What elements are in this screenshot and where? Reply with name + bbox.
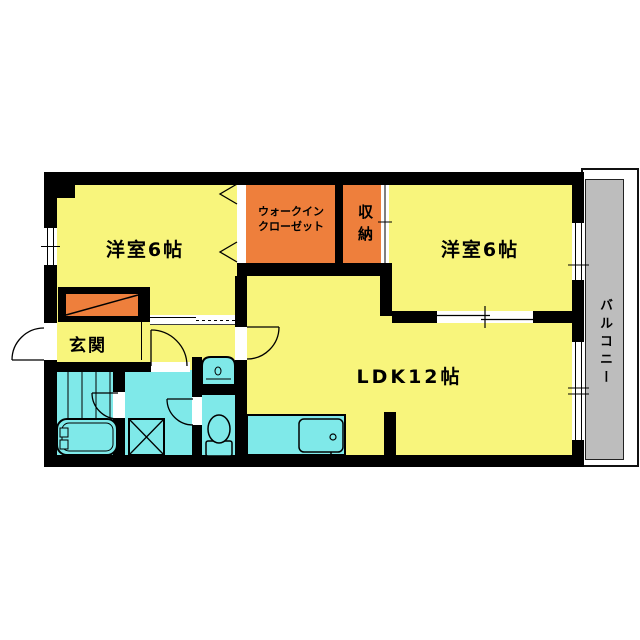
- walkin-closet-label: ウォークイン クローゼット: [246, 204, 336, 234]
- washroom-door-arc: [151, 330, 187, 366]
- bedroom2-sliding-door: [437, 306, 533, 328]
- washing-machine-icon: [129, 419, 164, 455]
- window-left: [41, 228, 60, 265]
- entrance-label: 玄関: [60, 331, 116, 356]
- bedroom1-sliding-door: [150, 318, 236, 325]
- window-ldk: [568, 342, 589, 440]
- room-bedroom-2-label: 洋室6帖: [420, 235, 540, 262]
- walkin-closet-label-line1: ウォークイン: [246, 204, 336, 219]
- kitchen-sink-icon: [247, 415, 345, 460]
- window-bedroom2: [568, 223, 589, 280]
- fixtures-overlay: [0, 0, 640, 640]
- vanity-sink-icon: [202, 357, 235, 385]
- front-door-arc: [12, 328, 44, 360]
- balcony-label: バルコニー: [590, 283, 614, 403]
- bathtub-icon: [57, 419, 117, 455]
- floorplan: 洋室6帖 洋室6帖 ウォークイン クローゼット 収納 玄関 LDK12帖 バルコ…: [0, 0, 640, 640]
- toilet-icon: [206, 415, 232, 456]
- room-bedroom-1-label: 洋室6帖: [85, 235, 205, 262]
- storage-label: 収納: [348, 192, 376, 260]
- walkin-closet-label-line2: クローゼット: [246, 219, 336, 234]
- bathroom-tile-lines: [68, 372, 110, 418]
- storage-door-line: [378, 183, 392, 263]
- ldk-label: LDK12帖: [342, 362, 477, 389]
- shoe-cabinet-diagonal: [66, 295, 138, 315]
- ldk-door-arc: [247, 327, 279, 359]
- folding-door-chevrons: [220, 184, 237, 262]
- toilet-door-arc: [167, 399, 193, 425]
